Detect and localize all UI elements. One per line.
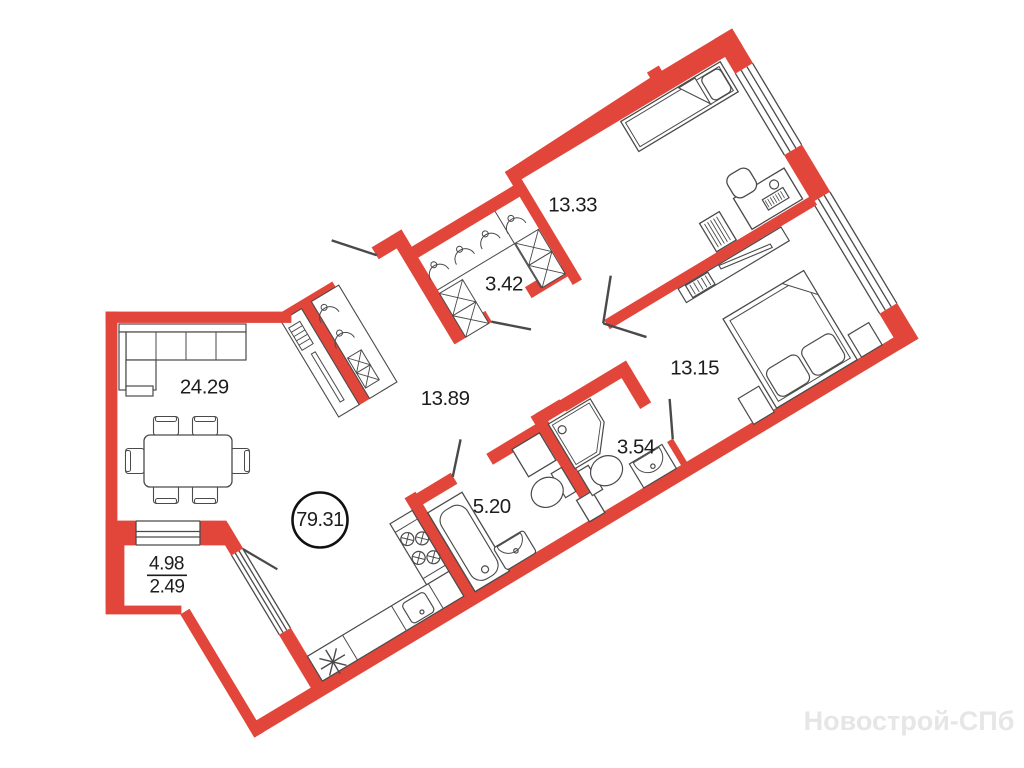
svg-text:Новострой-СПб: Новострой-СПб: [804, 706, 1015, 736]
svg-text:2.49: 2.49: [150, 577, 185, 598]
svg-text:4.98: 4.98: [149, 554, 184, 575]
svg-text:5.20: 5.20: [473, 495, 511, 518]
svg-text:13.33: 13.33: [548, 194, 597, 217]
svg-text:13.15: 13.15: [670, 356, 719, 379]
svg-text:24.29: 24.29: [180, 376, 229, 399]
svg-text:79.31: 79.31: [296, 509, 344, 531]
svg-text:13.89: 13.89: [421, 387, 470, 410]
svg-text:3.42: 3.42: [485, 273, 523, 296]
svg-text:3.54: 3.54: [617, 435, 655, 458]
